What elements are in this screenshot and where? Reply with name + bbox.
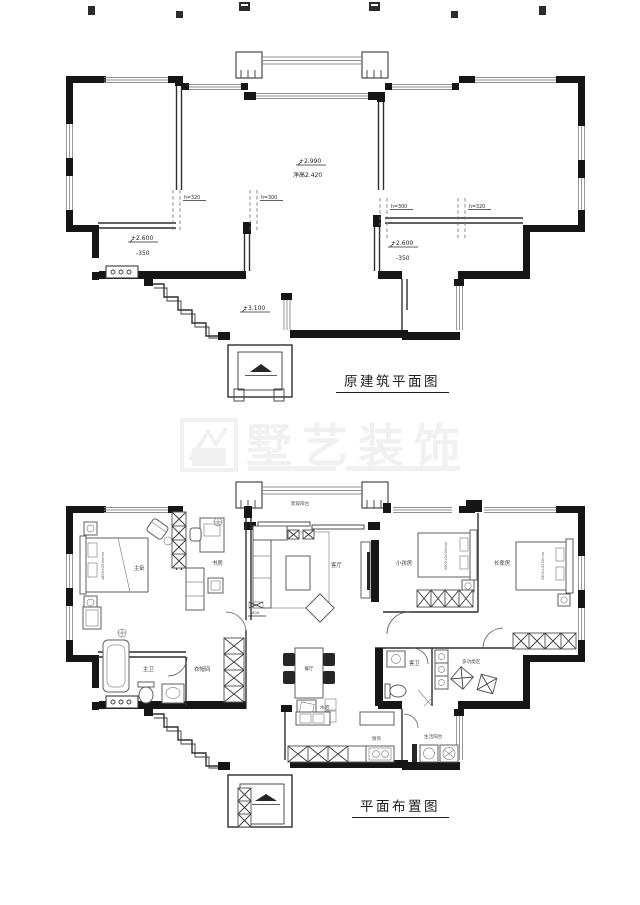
room-label-view-balcony: 景观阳台	[291, 500, 310, 507]
beam-lines: h=320 h=300 h=300 h=320	[173, 190, 491, 240]
cloakroom: 衣帽间	[194, 638, 244, 702]
accent-table	[306, 594, 334, 622]
ac-platform	[236, 52, 262, 78]
bed-size-label: 1500×2000mm	[444, 541, 448, 570]
counter	[360, 712, 394, 725]
right-drop-label: -350	[396, 255, 410, 262]
sofa	[186, 568, 204, 610]
armchair	[146, 518, 169, 541]
room-label-service-balcony: 生活阳台	[424, 733, 443, 740]
right-level-label: +2.600	[391, 240, 413, 247]
beam-label: h=320	[184, 195, 200, 201]
speaker	[303, 530, 314, 539]
washing-machine-icon	[440, 745, 458, 762]
balcony-rail	[262, 57, 362, 64]
bed	[80, 536, 148, 594]
plant-icon	[214, 518, 222, 526]
toilet	[138, 682, 154, 703]
living-room: 客厅 800	[248, 526, 379, 622]
layout-plan-title: 平面布置图	[352, 799, 449, 818]
left-level-label: +2.600	[131, 235, 153, 242]
room-label-kids-room: 小孩房	[396, 559, 412, 567]
hall-level-label: +2.990	[299, 158, 321, 165]
base-cabinets	[288, 746, 366, 762]
floorplan-sheet: h=320 h=300 h=300 h=320 +2.990 净高2.420 +…	[0, 0, 640, 905]
nightstand	[84, 522, 97, 535]
layout-floor-plan: 景观阳台	[66, 482, 585, 827]
sink-vanity	[162, 684, 184, 703]
shower-corner	[418, 690, 432, 706]
bed-size-label: 1500×2000mm	[541, 551, 545, 580]
vent-box	[106, 696, 138, 708]
speaker	[288, 530, 299, 539]
room-label-water-bar: 水吧	[320, 704, 330, 711]
desk	[200, 518, 224, 552]
desk-chair	[190, 528, 201, 541]
stove-box	[106, 266, 138, 278]
tv-wall	[371, 540, 379, 602]
left-drop-label: -350	[136, 250, 150, 257]
room-label-guest-bath: 客卫	[409, 659, 420, 667]
room-label-cloakroom: 衣帽间	[194, 665, 210, 673]
plan-title-text: 平面布置图	[360, 799, 440, 815]
hall-height-label: 净高2.420	[293, 171, 322, 179]
guest-bath: 客卫	[385, 651, 432, 706]
floor-cushion	[451, 667, 474, 690]
room-label-living-room: 客厅	[331, 561, 342, 569]
original-plan-title: 原建筑平面图	[336, 374, 449, 393]
floorplan-drawing: h=320 h=300 h=300 h=320 +2.990 净高2.420 +…	[0, 0, 640, 905]
room-label-study: 书房	[212, 559, 223, 567]
utility-sink	[420, 745, 438, 762]
beam-label: h=320	[469, 204, 485, 210]
sheet-top-ticks	[88, 2, 546, 18]
wardrobe	[172, 512, 186, 568]
master-bedroom: 1800×2000mm 主卧	[80, 518, 172, 629]
master-bath: 主卫	[103, 629, 184, 703]
dining-chair	[323, 671, 335, 684]
toilet	[385, 684, 406, 698]
watermark-text: 墅艺装饰	[246, 419, 470, 473]
sink-counter	[296, 712, 330, 725]
side-table	[208, 578, 223, 593]
dining-chair	[323, 653, 335, 666]
room-label-kitchen: 厨房	[372, 735, 382, 742]
bathtub	[103, 640, 129, 692]
entry-level-label: +3.100	[243, 305, 265, 312]
beam-label: h=300	[391, 204, 407, 210]
dining-chair	[283, 671, 295, 684]
watermark: 墅艺装饰	[182, 419, 470, 473]
room-label-master-bedroom: 主卧	[134, 564, 145, 572]
kitchen: 厨房	[288, 712, 394, 762]
floor-cushion	[477, 674, 497, 694]
room-label-dining: 餐厅	[304, 665, 314, 672]
room-label-master-bath: 主卫	[143, 665, 154, 673]
beam-label: h=300	[261, 195, 277, 201]
exterior-stair	[144, 708, 230, 770]
tv-icon	[367, 552, 370, 590]
wardrobe	[417, 590, 473, 607]
corner-sofa	[253, 526, 287, 608]
tv-cabinet	[361, 542, 370, 598]
ac-platform	[236, 482, 262, 508]
entry-porch	[228, 760, 300, 827]
room-label-multi-zone: 多功能区	[462, 658, 481, 665]
plan-title-text: 原建筑平面图	[344, 374, 440, 390]
dim-label: 800	[252, 610, 260, 615]
service-balcony: 生活阳台	[412, 733, 458, 762]
multi-zone: 多功能区	[435, 650, 497, 694]
dining-table	[295, 648, 323, 698]
sink	[387, 651, 405, 667]
exterior-stair	[144, 278, 230, 340]
dining-chair	[283, 653, 295, 666]
window	[67, 78, 169, 211]
bed-size-label: 1800×2000mm	[101, 551, 105, 580]
bench	[83, 607, 101, 629]
stair-arrow-icon	[250, 364, 272, 372]
balcony-rail	[262, 487, 362, 494]
room-label-elders-room: 长辈房	[494, 559, 510, 567]
ac-platform	[362, 52, 388, 78]
shoe-cabinet	[238, 788, 251, 827]
original-floor-plan: h=320 h=300 h=300 h=320 +2.990 净高2.420 +…	[66, 52, 585, 401]
dresser	[513, 633, 576, 649]
elders-room: 1500×2000mm 长辈房	[494, 539, 576, 649]
stove-icon	[366, 746, 394, 762]
stair-arrow-icon	[255, 794, 277, 801]
study: 书房	[186, 518, 224, 610]
kids-room: 1500×2000mm 小孩房	[396, 530, 477, 607]
nightstand	[558, 594, 570, 606]
floor-drain-icon	[118, 629, 126, 637]
wardrobe	[224, 638, 244, 702]
coffee-table	[286, 556, 310, 590]
entry-porch	[228, 330, 300, 401]
